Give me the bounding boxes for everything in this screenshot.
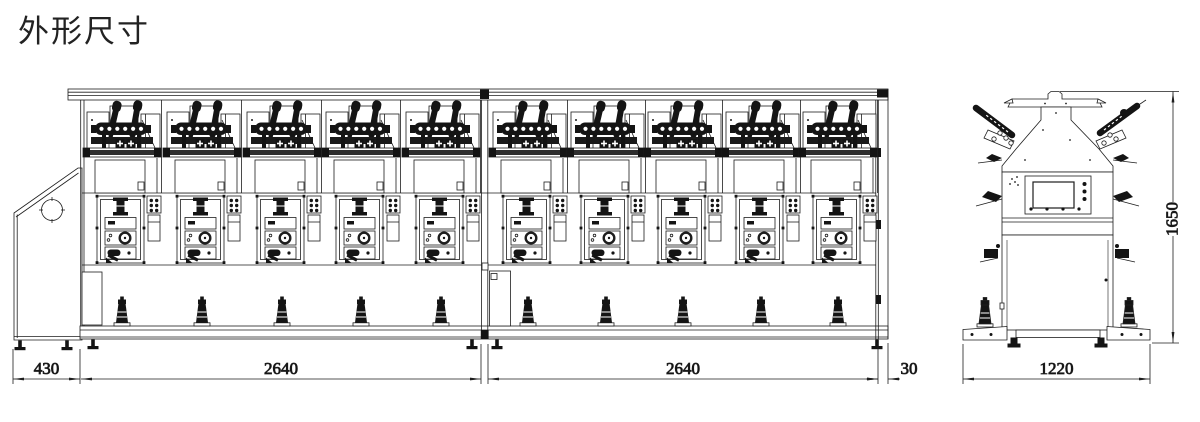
center-feet [1008,338,1108,348]
winder-units [83,100,878,264]
front-dimensions: 430 2640 2640 30 [13,343,918,384]
right-arm [1096,100,1146,149]
dim-right-end: 30 [901,359,918,378]
front-view: 430 2640 2640 30 [13,89,918,384]
winder-unit [799,100,878,264]
screen [1033,182,1074,208]
page: { "title": "外形尺寸", "front_view": { "unit… [0,0,1200,422]
left-arm [976,108,1014,149]
dim-section-2: 2640 [666,359,700,378]
dim-section-1: 2640 [264,359,298,378]
dimension-drawing: 430 2640 2640 30 [0,0,1200,422]
winder-unit [322,100,401,264]
winder-unit [243,100,322,264]
side-body [963,92,1150,348]
left-end-cover [14,168,82,340]
winder-unit [402,100,481,264]
base-plate-left [963,327,1007,341]
winder-unit [489,100,568,264]
side-view: 1650 1220 [963,92,1182,385]
winder-unit [722,100,801,264]
winder-unit [644,100,723,264]
winder-unit [567,100,646,264]
top-cap [1008,92,1102,108]
control-panel [1025,176,1091,214]
winder-unit [163,100,242,264]
base-plate-right [1107,327,1150,341]
dim-height: 1650 [1163,202,1182,236]
leveling-feet [114,297,846,327]
left-cabinet [82,272,102,325]
dim-left-end: 430 [34,359,60,378]
dim-width: 1220 [1040,359,1074,378]
floor-feet [15,340,883,351]
winder-unit [83,100,162,264]
